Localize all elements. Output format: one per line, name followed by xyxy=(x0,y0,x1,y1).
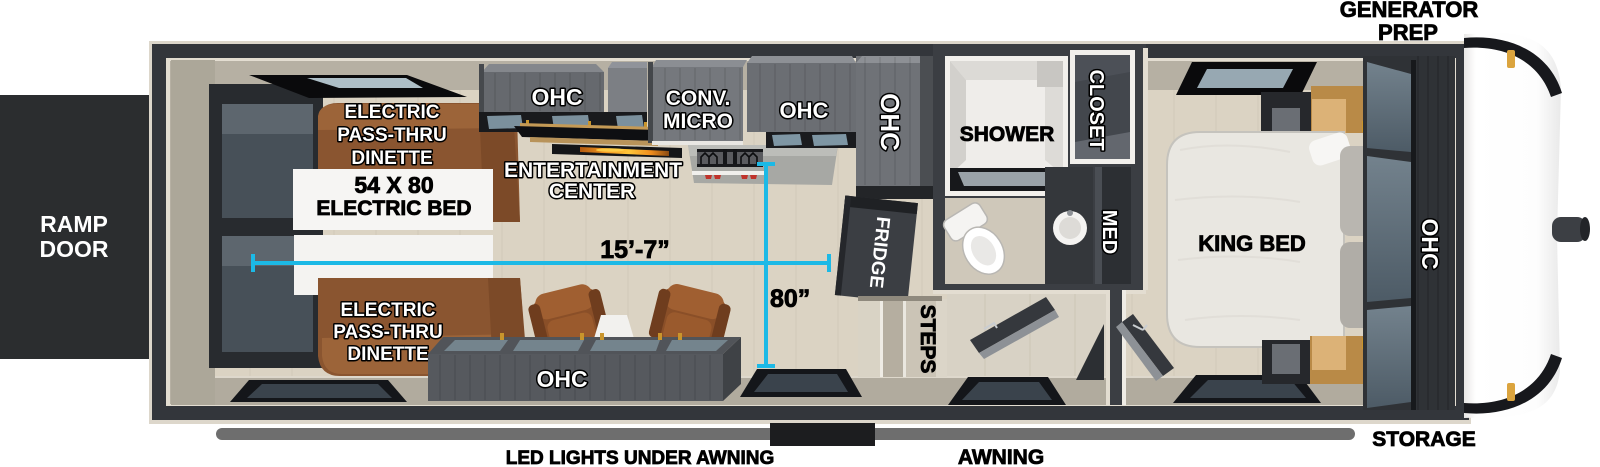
svg-text:RAMP: RAMP xyxy=(40,211,108,237)
svg-text:STORAGE: STORAGE xyxy=(1372,428,1475,451)
svg-text:PASS-THRU: PASS-THRU xyxy=(333,322,442,343)
svg-text:15’-7”: 15’-7” xyxy=(600,236,669,264)
svg-text:OHC: OHC xyxy=(536,366,587,392)
svg-text:ELECTRIC: ELECTRIC xyxy=(345,102,440,123)
svg-text:DINETTE: DINETTE xyxy=(347,344,428,365)
svg-text:CLOSET: CLOSET xyxy=(1085,69,1107,150)
svg-text:LED LIGHTS UNDER AWNING: LED LIGHTS UNDER AWNING xyxy=(506,448,774,467)
svg-text:DINETTE: DINETTE xyxy=(351,148,432,169)
svg-text:PREP: PREP xyxy=(1378,20,1438,45)
svg-text:KING BED: KING BED xyxy=(1198,231,1306,256)
svg-text:ELECTRIC BED: ELECTRIC BED xyxy=(316,197,471,220)
svg-text:SHOWER: SHOWER xyxy=(960,123,1055,146)
svg-text:ENTERTAINMENT: ENTERTAINMENT xyxy=(504,159,682,182)
svg-text:STEPS: STEPS xyxy=(916,305,939,374)
svg-text:CENTER: CENTER xyxy=(549,180,635,203)
svg-text:PASS-THRU: PASS-THRU xyxy=(337,125,446,146)
svg-text:ELECTRIC: ELECTRIC xyxy=(341,300,436,321)
svg-text:GENERATOR: GENERATOR xyxy=(1340,0,1479,22)
svg-text:54 X 80: 54 X 80 xyxy=(354,172,433,198)
svg-text:80”: 80” xyxy=(770,285,810,313)
svg-text:DOOR: DOOR xyxy=(40,236,109,262)
svg-text:CONV.: CONV. xyxy=(666,87,731,110)
svg-text:AWNING: AWNING xyxy=(958,446,1044,467)
svg-text:MED: MED xyxy=(1098,210,1120,254)
svg-text:OHC: OHC xyxy=(875,93,905,151)
svg-text:OHC: OHC xyxy=(780,98,829,123)
svg-text:OHC: OHC xyxy=(1417,218,1443,269)
svg-text:MICRO: MICRO xyxy=(663,110,733,133)
svg-text:OHC: OHC xyxy=(531,84,582,110)
